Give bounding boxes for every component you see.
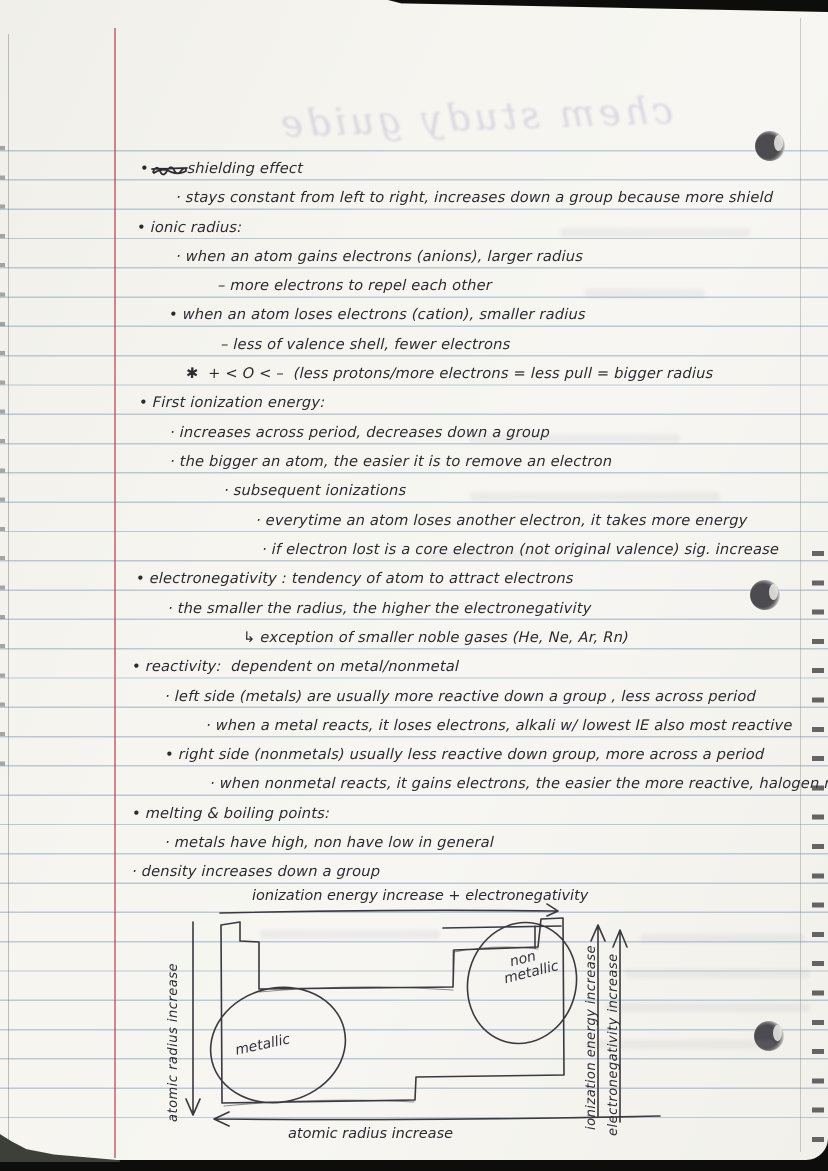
note-line: · the bigger an atom, the easier it is t… [170,453,613,470]
note-line: • right side (nonmetals) usually less re… [165,746,765,763]
note-line: • reactivity: dependent on metal/nonmeta… [132,658,460,675]
diagram-bottom-label: atomic radius increase [288,1126,453,1142]
scribbled-out-word [151,162,188,176]
note-line: · everytime an atom loses another electr… [256,512,748,529]
diagram-right-label-1: ionization energy increase [584,922,599,1130]
note-line: · density increases down a group [132,863,381,880]
note-line: • First ionization energy: [139,394,326,411]
note-line: · when an atom gains electrons (anions),… [176,248,584,265]
note-line: · when nonmetal reacts, it gains electro… [210,775,828,792]
ink-bleed-smudge [470,492,720,501]
note-line: · if electron lost is a core electron (n… [262,541,780,558]
torn-edge-ticks-right [812,551,824,1151]
note-line: • electronegativity : tendency of atom t… [136,570,574,587]
diagram-left-label: atomic radius increase [166,912,181,1122]
note-line: · stays constant from left to right, inc… [176,189,774,206]
table-outline [221,918,564,1103]
torn-edge-ticks-left [0,146,5,766]
note-line: · subsequent ionizations [224,482,407,499]
punch-hole [755,131,785,161]
note-line: • melting & boiling points: [132,805,331,822]
note-line: · the smaller the radius, the higher the… [168,600,592,617]
note-line: • when an atom loses electrons (cation),… [169,306,586,323]
note-line: · when a metal reacts, it loses electron… [206,717,793,734]
punch-hole [750,580,780,610]
ink-bleed-smudge [585,289,705,298]
note-line: · left side (metals) are usually more re… [165,688,757,705]
page-edge-right [800,18,801,1152]
diagram-top-label: ionization energy increase + electronega… [252,888,588,904]
note-line: ✱ + < O < – (less protons/more electrons… [186,365,714,382]
note-line: · metals have high, non have low in gene… [165,834,495,851]
note-line: ↳ exception of smaller noble gases (He, … [243,629,630,646]
ink-bleed-smudge [560,228,750,237]
note-line: • ionic radius: [137,219,243,236]
red-margin-line [114,28,116,1158]
note-line: · increases across period, decreases dow… [170,424,551,441]
left-trend-arrow [186,922,200,1115]
note-line: – more electrons to repel each other [218,277,493,294]
diagram-right-label-2: electronegativity increase [606,928,621,1136]
page-edge-left [8,34,9,1152]
notebook-page-scan: chem study guide • shielding effect · st… [0,0,828,1171]
note-line: – less of valence shell, fewer electrons [221,336,511,353]
top-trend-arrow [220,904,558,916]
